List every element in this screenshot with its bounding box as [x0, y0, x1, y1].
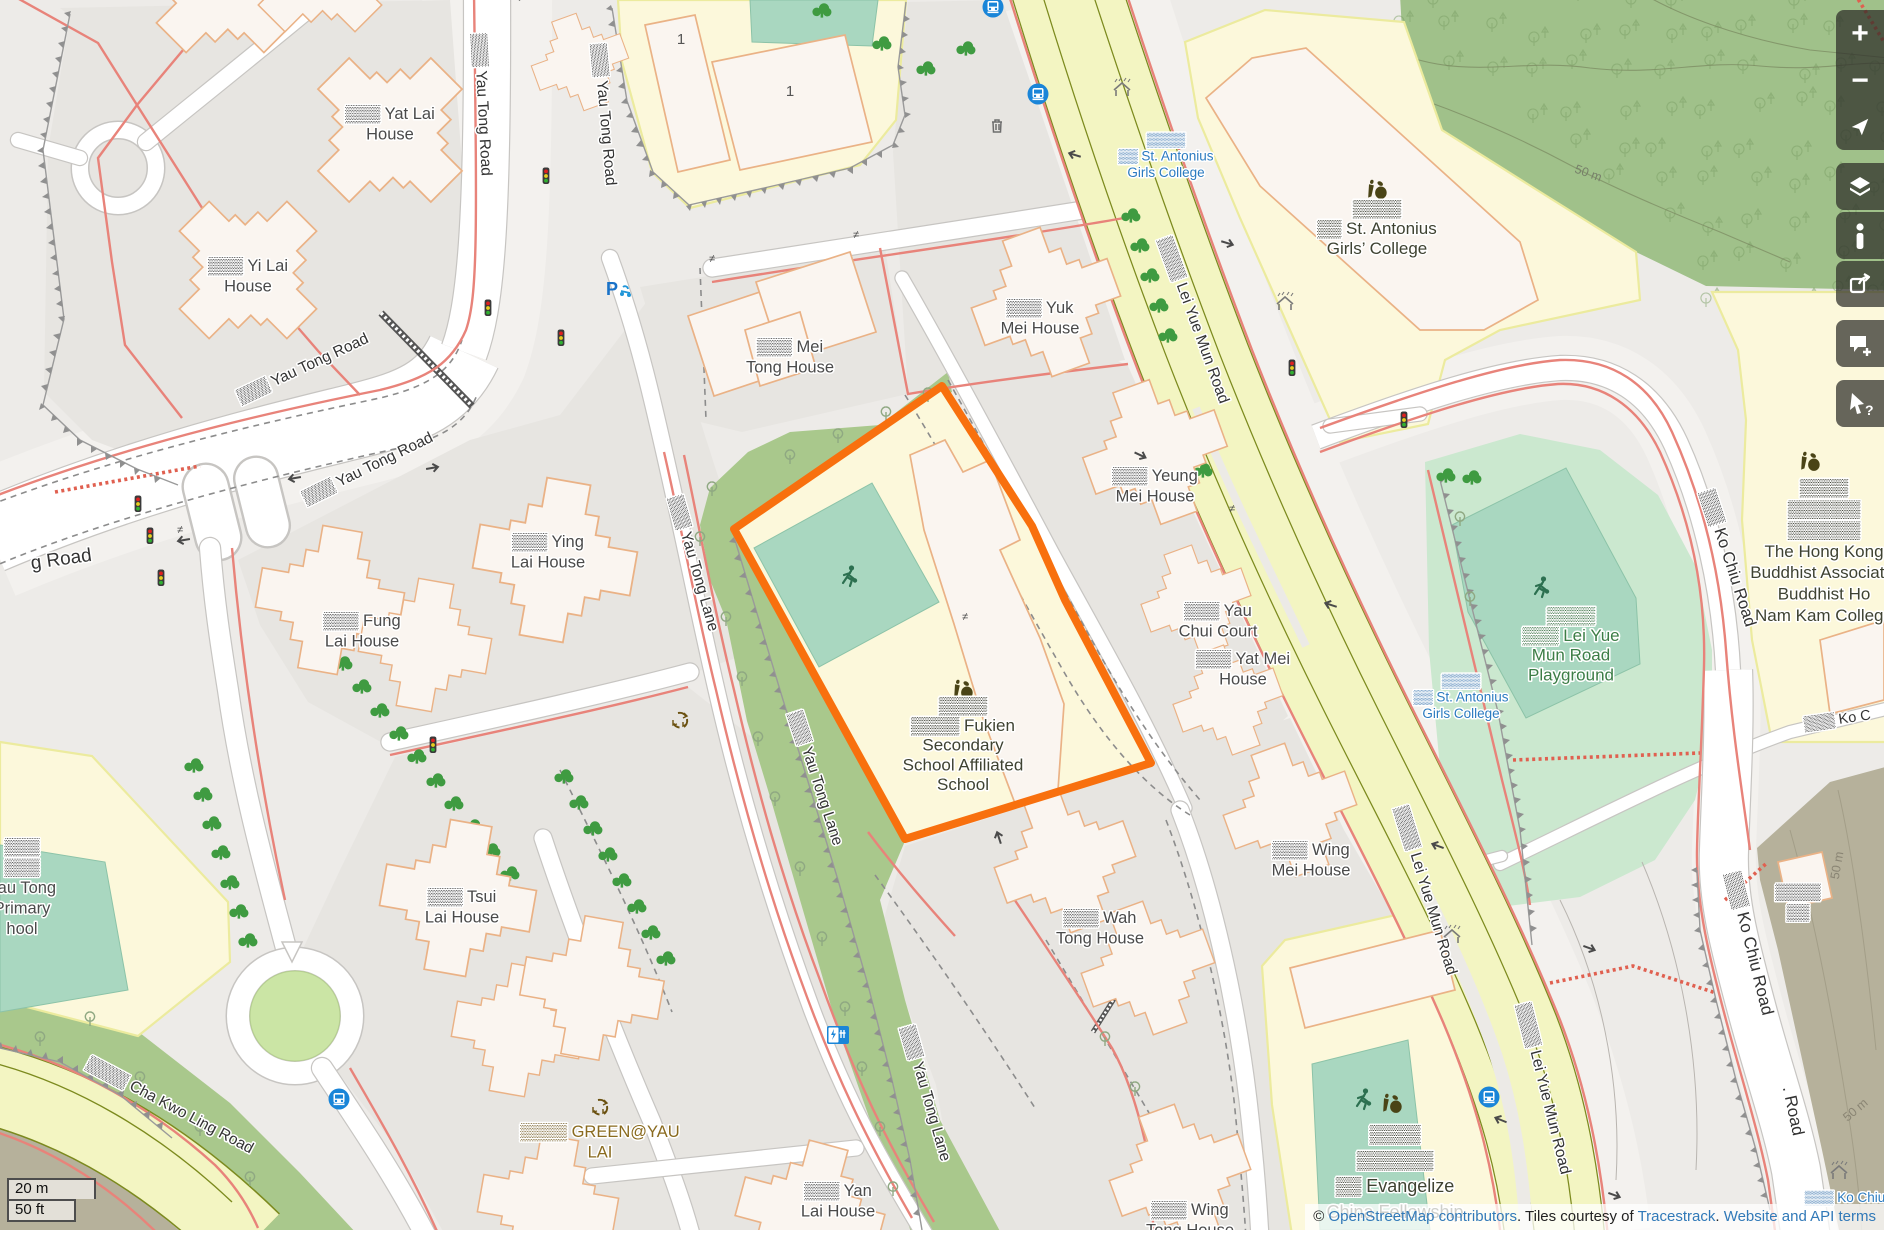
- svg-text:Buddhist Associatio: Buddhist Associatio: [1750, 563, 1884, 582]
- svg-text:Buddhist Ho: Buddhist Ho: [1778, 585, 1871, 604]
- svg-text:▒▒▒ Yi Lai: ▒▒▒ Yi Lai: [208, 257, 288, 275]
- svg-text:?: ?: [1865, 402, 1874, 417]
- svg-text:▒▒▒ Yat Mei: ▒▒▒ Yat Mei: [1196, 650, 1290, 668]
- svg-text:hool: hool: [6, 920, 37, 938]
- svg-text:School Affiliated: School Affiliated: [903, 755, 1024, 774]
- svg-text:Girls College: Girls College: [1422, 706, 1499, 721]
- svg-text:▒▒▒▒: ▒▒▒▒: [1547, 606, 1595, 626]
- svg-text:1: 1: [677, 31, 685, 48]
- svg-text:▒▒▒: ▒▒▒: [4, 859, 39, 877]
- svg-text:Girls’ College: Girls’ College: [1327, 239, 1427, 258]
- svg-text:▒▒▒ Wing: ▒▒▒ Wing: [1151, 1201, 1228, 1219]
- svg-text:Lai House: Lai House: [325, 633, 399, 651]
- svg-text:LAI: LAI: [588, 1144, 613, 1162]
- svg-text:▒▒▒▒ Fukien: ▒▒▒▒ Fukien: [911, 716, 1015, 736]
- svg-text:▒▒▒▒▒▒: ▒▒▒▒▒▒: [1788, 521, 1860, 541]
- svg-text:1: 1: [786, 83, 794, 100]
- svg-text:▒▒▒ Wing: ▒▒▒ Wing: [1272, 841, 1349, 859]
- svg-text:Tong House: Tong House: [746, 359, 834, 377]
- svg-text:Primary: Primary: [0, 900, 51, 918]
- svg-text:Yau Tong: Yau Tong: [0, 879, 56, 897]
- svg-text:School: School: [937, 775, 989, 794]
- svg-text:▒▒▒▒: ▒▒▒▒: [1442, 673, 1481, 689]
- svg-text:P: P: [606, 279, 618, 299]
- svg-text:▒▒▒ Yat Lai: ▒▒▒ Yat Lai: [345, 105, 435, 123]
- svg-text:▒▒▒▒: ▒▒▒▒: [1353, 199, 1401, 219]
- svg-text:▒▒▒ Mei: ▒▒▒ Mei: [757, 338, 823, 356]
- svg-text:▒▒▒ Ying: ▒▒▒ Ying: [512, 533, 584, 551]
- svg-text:House: House: [366, 126, 414, 144]
- svg-text:▒▒▒ Wah: ▒▒▒ Wah: [1064, 909, 1137, 927]
- svg-text:▒▒: ▒▒: [1787, 904, 1810, 922]
- svg-text:≠: ≠: [962, 611, 968, 623]
- svg-text:▒▒▒▒: ▒▒▒▒: [1800, 478, 1848, 498]
- svg-text:▒▒▒▒▒▒: ▒▒▒▒▒▒: [1788, 499, 1860, 519]
- svg-text:Mei House: Mei House: [1001, 320, 1080, 338]
- svg-text:Mun Road: Mun Road: [1532, 646, 1610, 665]
- svg-text:▒▒▒ Yuk: ▒▒▒ Yuk: [1007, 299, 1075, 317]
- svg-text:▒▒ Evangelize: ▒▒ Evangelize: [1336, 1176, 1455, 1197]
- svg-text:Mei House: Mei House: [1272, 862, 1351, 880]
- svg-text:▒▒▒ Tsui: ▒▒▒ Tsui: [428, 888, 497, 906]
- svg-text:▒▒▒▒: ▒▒▒▒: [1369, 1124, 1420, 1145]
- svg-text:▒▒▒ Yeung: ▒▒▒ Yeung: [1112, 467, 1198, 485]
- svg-text:▒▒ St. Antonius: ▒▒ St. Antonius: [1119, 149, 1214, 165]
- svg-text:▒▒ St. Antonius: ▒▒ St. Antonius: [1317, 219, 1437, 239]
- svg-text:▒▒▒▒: ▒▒▒▒: [1775, 883, 1821, 901]
- svg-text:▒▒▒: ▒▒▒: [4, 838, 39, 856]
- svg-text:≠: ≠: [709, 253, 715, 265]
- svg-text:Lai House: Lai House: [511, 554, 585, 572]
- svg-text:Chui Court: Chui Court: [1179, 623, 1258, 641]
- svg-text:Playground: Playground: [1528, 665, 1614, 684]
- svg-text:≠: ≠: [1229, 503, 1235, 515]
- svg-text:Girls College: Girls College: [1127, 165, 1204, 180]
- svg-text:▒▒▒ Lei Yue: ▒▒▒ Lei Yue: [1522, 626, 1619, 646]
- svg-text:Lai House: Lai House: [801, 1203, 875, 1221]
- svg-text:≠: ≠: [853, 229, 859, 241]
- svg-text:▒▒▒▒: ▒▒▒▒: [939, 696, 987, 716]
- svg-text:Tong House: Tong House: [1146, 1222, 1234, 1231]
- svg-text:▒▒ St. Antonius: ▒▒ St. Antonius: [1414, 690, 1509, 706]
- svg-text:▒▒▒▒▒▒: ▒▒▒▒▒▒: [1357, 1150, 1434, 1171]
- svg-text:≠: ≠: [177, 524, 183, 536]
- svg-text:Secondary: Secondary: [922, 736, 1004, 755]
- svg-text:The Hong Kong: The Hong Kong: [1764, 542, 1883, 561]
- svg-text:Lai House: Lai House: [425, 909, 499, 927]
- svg-text:Nam Kam College: Nam Kam College: [1755, 606, 1884, 625]
- svg-text:▒▒▒ Yan: ▒▒▒ Yan: [804, 1182, 872, 1200]
- svg-text:House: House: [1219, 671, 1267, 689]
- svg-text:House: House: [224, 278, 272, 296]
- svg-text:Mei House: Mei House: [1116, 488, 1195, 506]
- svg-text:▒▒▒ Yau: ▒▒▒ Yau: [1184, 602, 1252, 620]
- svg-text:Tong House: Tong House: [1056, 930, 1144, 948]
- svg-text:▒▒▒▒: ▒▒▒▒: [1147, 132, 1186, 148]
- svg-text:▒▒▒ Fung: ▒▒▒ Fung: [323, 612, 400, 630]
- svg-text:▒▒▒▒ GREEN@YAU: ▒▒▒▒ GREEN@YAU: [520, 1123, 679, 1141]
